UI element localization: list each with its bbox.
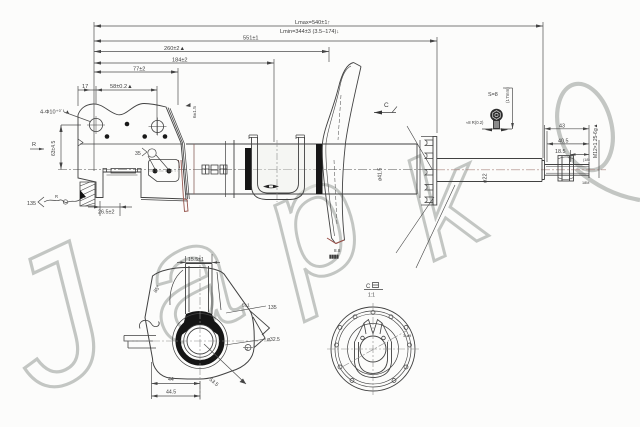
svg-text:15.5±1: 15.5±1 (188, 257, 204, 263)
svg-text:135: 135 (27, 201, 36, 207)
svg-text:Lmax=540±1↑: Lmax=540±1↑ (295, 20, 330, 26)
svg-text:R: R (32, 142, 36, 148)
svg-text:▮▮▮▮: ▮▮▮▮ (329, 254, 339, 260)
svg-text:1:1: 1:1 (368, 293, 375, 299)
svg-text:(17mm): (17mm) (505, 87, 510, 103)
svg-text:77±2: 77±2 (133, 67, 145, 73)
svg-text:ø22: ø22 (483, 173, 489, 183)
svg-text:C: C (366, 284, 371, 290)
svg-text:M12×1.25-6g▲: M12×1.25-6g▲ (593, 123, 599, 158)
svg-text:R: R (55, 194, 58, 199)
svg-text:40.5: 40.5 (558, 139, 569, 145)
svg-text:(18): (18) (583, 158, 590, 162)
svg-text:17: 17 (82, 84, 88, 90)
svg-text:260±2▲: 260±2▲ (164, 46, 185, 52)
svg-text:44: 44 (168, 377, 174, 383)
svg-text:5±1: 5±1 (242, 303, 250, 308)
svg-text:35: 35 (135, 151, 141, 157)
svg-text:≈8 R(0.2): ≈8 R(0.2) (466, 120, 484, 125)
svg-text:ø32.5: ø32.5 (267, 337, 280, 343)
svg-text:63±4.5: 63±4.5 (51, 141, 57, 156)
svg-text:135: 135 (268, 305, 277, 311)
svg-text:26.5±2: 26.5±2 (98, 210, 114, 216)
svg-text:8.8: 8.8 (334, 248, 341, 253)
svg-text:44.5: 44.5 (166, 390, 176, 396)
svg-text:4-Φ10⁺⁰˙¹▲: 4-Φ10⁺⁰˙¹▲ (40, 109, 70, 116)
svg-text:43: 43 (559, 124, 565, 130)
svg-text:3-ø9: 3-ø9 (403, 333, 412, 338)
svg-text:551±1: 551±1 (243, 36, 259, 42)
svg-text:C: C (384, 102, 389, 109)
svg-text:Lmin=344±3 (3.5–174)↓: Lmin=344±3 (3.5–174)↓ (280, 29, 339, 35)
svg-text:18M: 18M (582, 181, 589, 185)
svg-text:184±2: 184±2 (172, 58, 188, 64)
svg-text:S=8: S=8 (488, 92, 498, 98)
svg-text:ø41.5: ø41.5 (378, 168, 384, 181)
svg-text:58±0.2▲: 58±0.2▲ (110, 84, 133, 90)
svg-text:6±1.5: 6±1.5 (192, 106, 198, 118)
svg-text:18.5: 18.5 (555, 149, 566, 155)
